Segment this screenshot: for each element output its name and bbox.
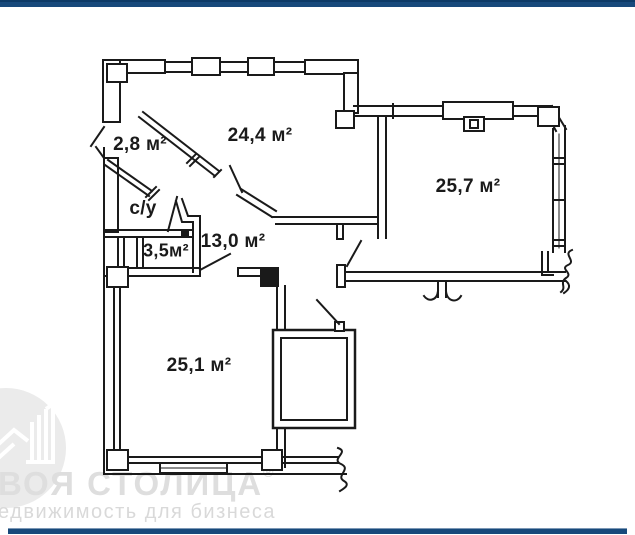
shaft-block <box>273 330 355 428</box>
door-leaf-entry <box>91 127 104 146</box>
room-label-bottom-room: 25,1 м² <box>167 355 232 377</box>
door-leaf-living <box>230 166 242 192</box>
room-label-wc: с/у <box>129 198 156 220</box>
column-left-mid <box>107 267 128 287</box>
corner-pier <box>261 268 278 286</box>
room-label-right-room: 25,7 м² <box>436 176 501 198</box>
floor-plan-drawing <box>0 0 635 535</box>
door-leaf-shaft <box>317 300 339 324</box>
room-label-storage: 3,5м² <box>143 241 189 262</box>
column-top-right <box>538 107 559 126</box>
wall-top-mid <box>305 60 358 74</box>
room-label-living: 24,4 м² <box>228 125 293 147</box>
column-bottom-left <box>107 450 128 470</box>
door-leaf-right-room <box>347 241 361 266</box>
bottom-accent-bar <box>8 528 627 534</box>
wall-end-cap <box>337 265 345 287</box>
walls <box>91 58 572 491</box>
room-label-corridor: 13,0 м² <box>201 231 266 253</box>
room-label-hall: 2,8 м² <box>113 134 167 156</box>
door-leaf-corridor <box>200 254 230 270</box>
window-block-1 <box>192 58 220 75</box>
wall-break-symbol-bottom <box>338 448 347 491</box>
column-bottom-right <box>262 450 282 470</box>
column-top-left <box>107 64 127 82</box>
floorplan-page: ВОЯ СТОЛИЦА® едвижимость для бизнеса <box>0 0 635 535</box>
column-mid <box>336 111 354 128</box>
window-block-2 <box>248 58 274 75</box>
